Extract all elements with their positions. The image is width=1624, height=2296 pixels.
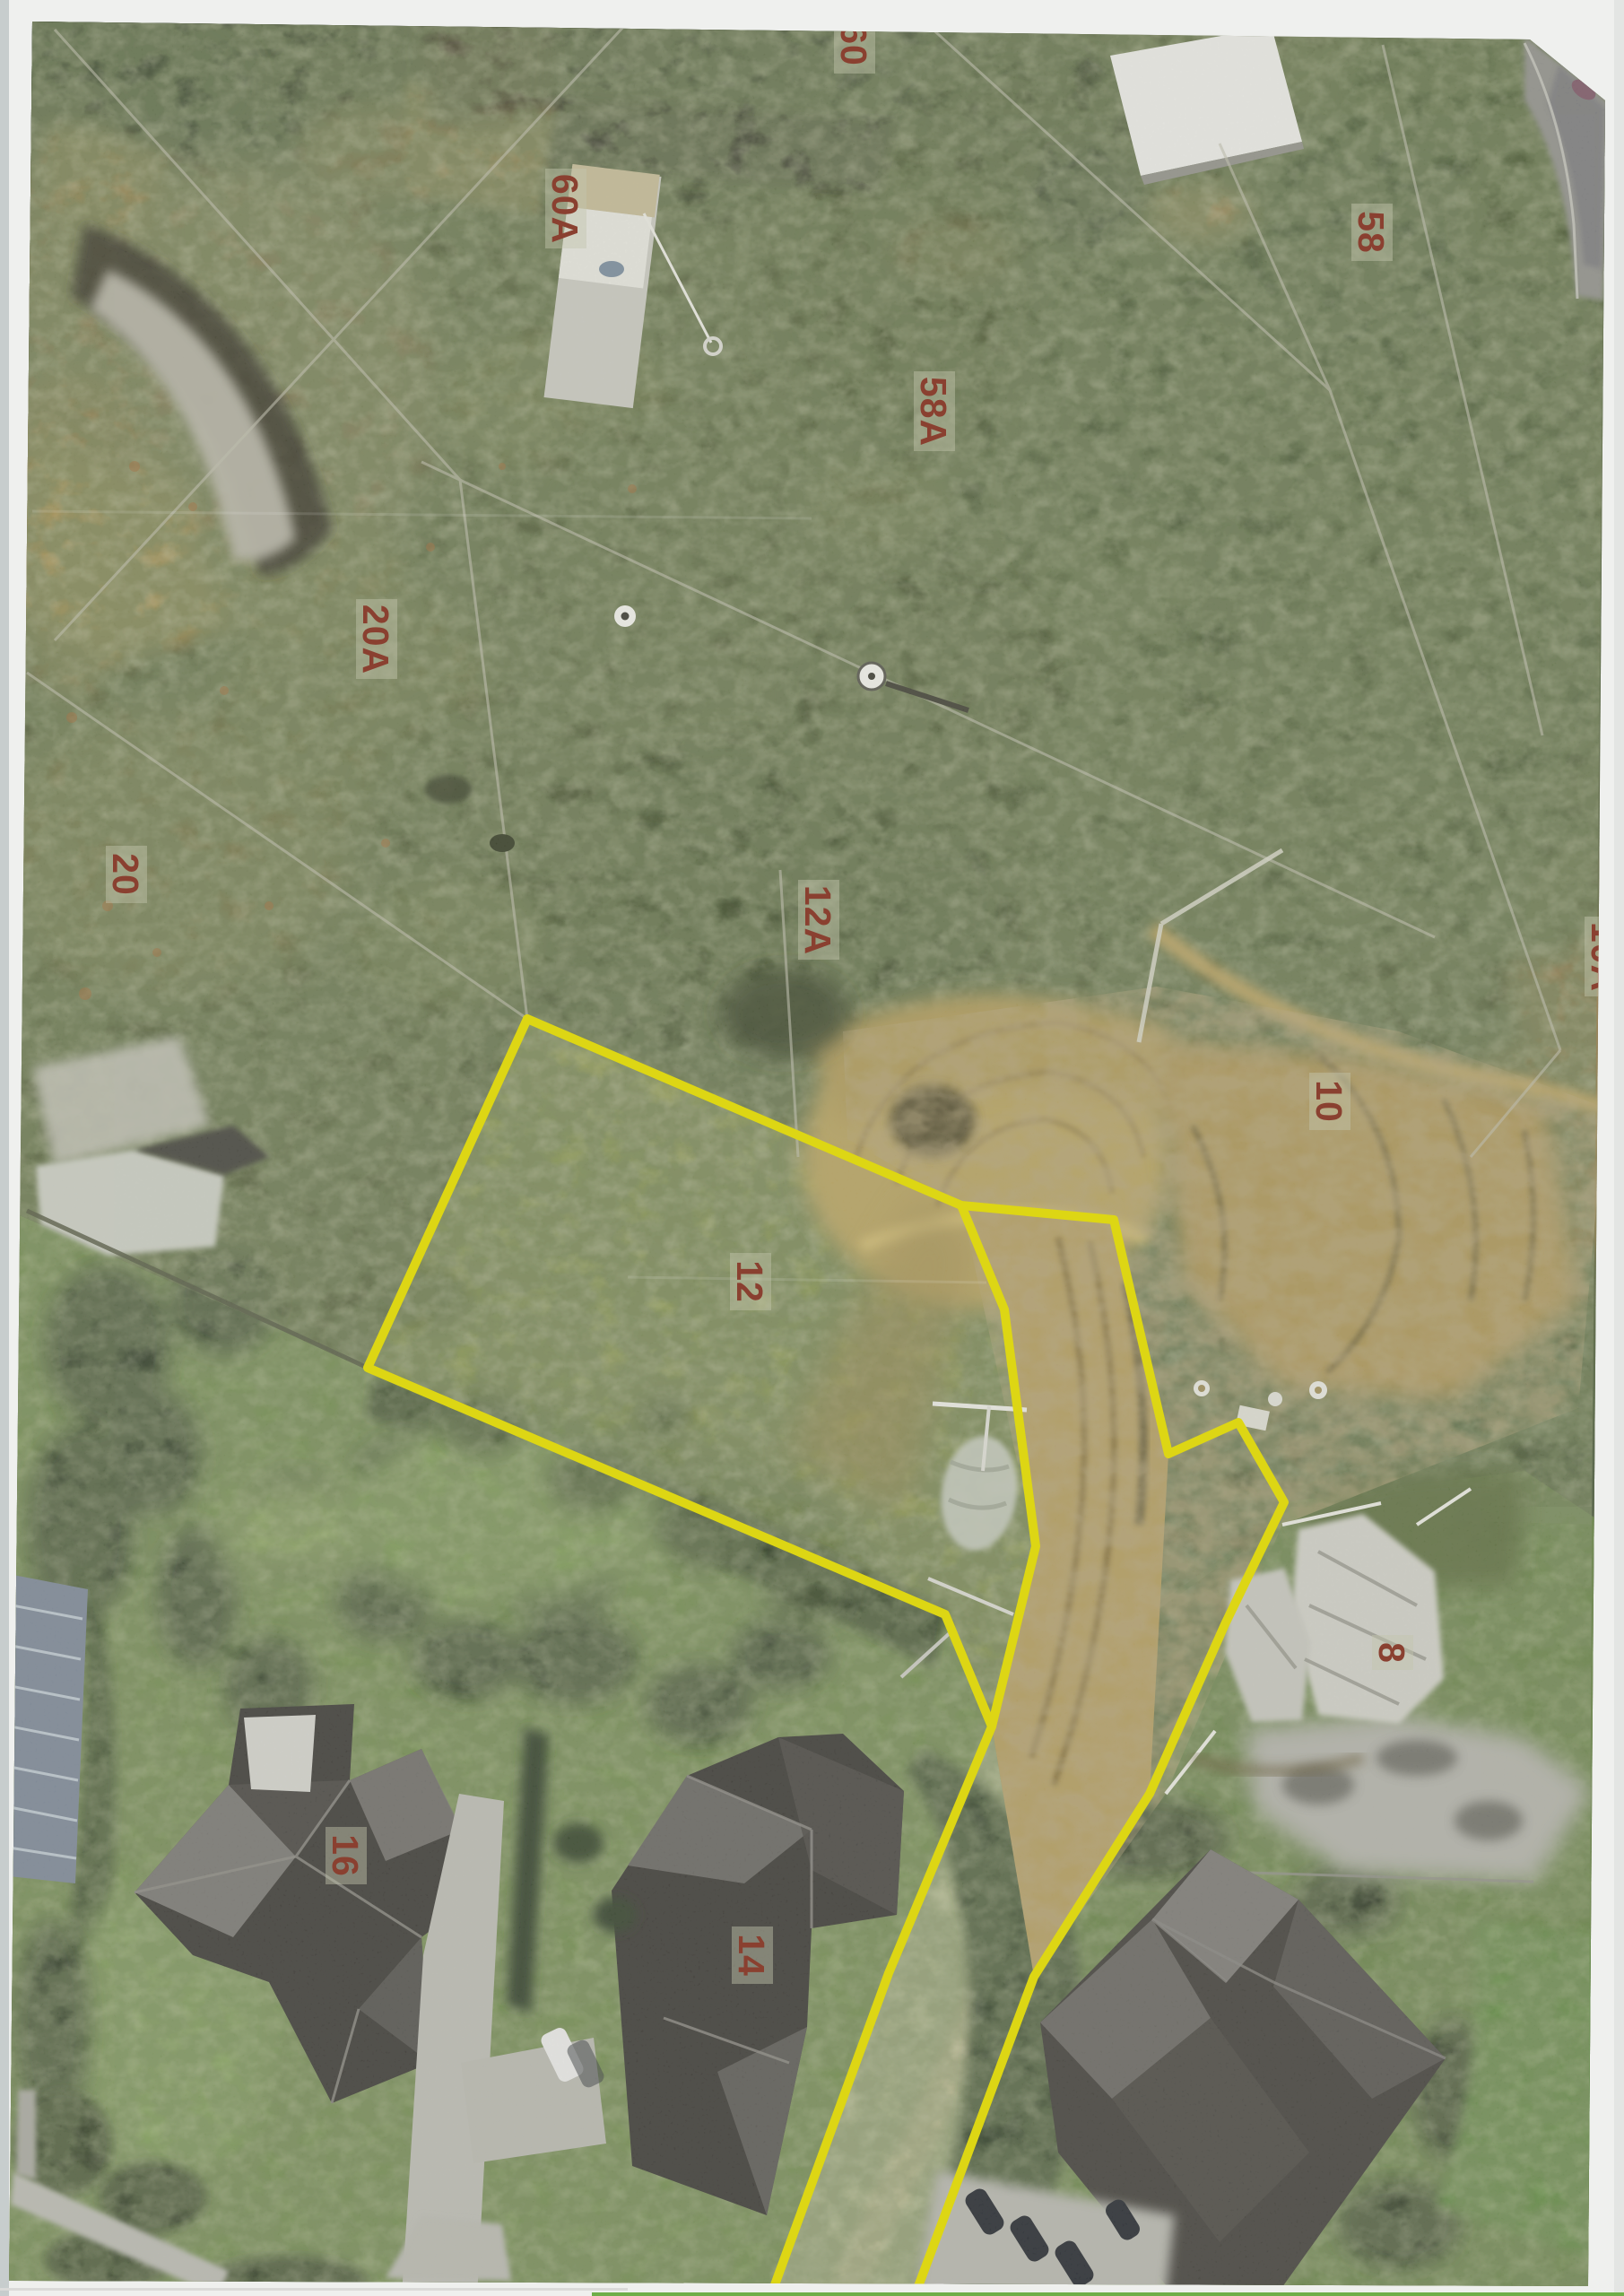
svg-text:20: 20 (105, 853, 146, 896)
svg-text:12: 12 (729, 1260, 770, 1303)
svg-text:60A: 60A (544, 174, 586, 244)
svg-text:20A: 20A (355, 604, 396, 674)
svg-text:14: 14 (731, 1934, 772, 1977)
svg-text:10: 10 (1308, 1080, 1350, 1123)
svg-text:12A: 12A (797, 885, 838, 955)
svg-text:58A: 58A (913, 377, 954, 447)
svg-text:58: 58 (1350, 211, 1392, 254)
svg-text:8: 8 (1371, 1642, 1412, 1664)
svg-text:16: 16 (325, 1834, 366, 1877)
